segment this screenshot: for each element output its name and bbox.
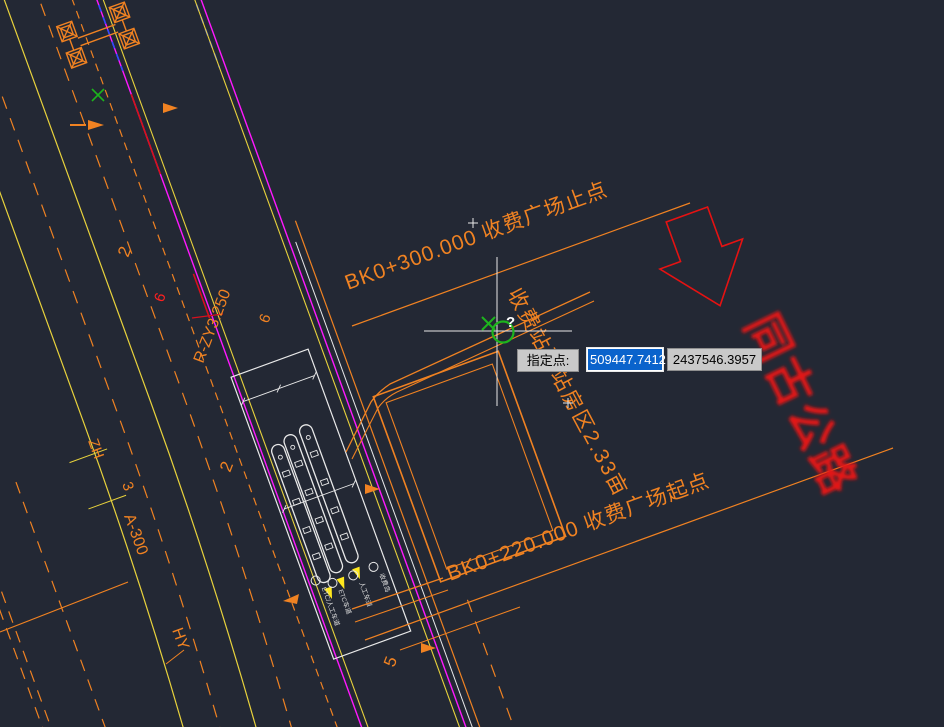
numeral: 2 — [114, 244, 135, 260]
lane-line — [0, 0, 438, 727]
median-line-magenta — [0, 0, 489, 727]
numeral: 6 — [256, 312, 275, 326]
lane-line — [467, 600, 623, 727]
cad-drawing-area[interactable]: ETC/人工车道 ETC车道 人工车道 收费岛 — [0, 0, 944, 727]
dynamic-input-x-field[interactable]: 509447.7412 — [586, 347, 664, 372]
dynamic-input-y-field[interactable]: 2437546.3957 — [667, 348, 762, 371]
hy-tick — [166, 650, 184, 664]
curve-label: R-ZY3.250 — [191, 287, 235, 365]
lane-line — [0, 549, 46, 727]
chainage-label-bk220: BK0+220.000 收费广场起点 — [444, 469, 713, 586]
lane-line — [16, 482, 108, 727]
station-area-label: 收费站副站房区2.33亩 — [503, 285, 633, 501]
flow-arrows — [70, 103, 436, 653]
alignment-a300: A-300 — [120, 512, 151, 558]
alignment-3: 3 — [118, 480, 137, 494]
numeral: 5 — [380, 654, 401, 670]
y-coordinate-value: 2437546.3957 — [673, 352, 756, 367]
segment-red — [131, 94, 160, 174]
culvert-symbol — [57, 2, 140, 68]
lane-markers: ETC/人工车道 ETC车道 人工车道 收费岛 — [310, 553, 398, 630]
numeral: 2 — [216, 459, 237, 475]
lane-line — [0, 0, 374, 727]
direction-sign-text: 同古公路 — [735, 306, 868, 505]
radial-line — [0, 582, 128, 632]
lane-label: ETC车道 — [337, 588, 355, 616]
green-point-marker — [92, 89, 104, 101]
segment-red — [193, 274, 209, 318]
direction-arrow — [646, 199, 762, 320]
alignment-zh: ZH — [84, 437, 107, 462]
help-glyph: ? — [506, 314, 515, 331]
cad-canvas[interactable]: ETC/人工车道 ETC车道 人工车道 收费岛 — [0, 0, 944, 727]
chainage-label-bk300: BK0+300.000 收费广场止点 — [342, 178, 611, 295]
dynamic-input-label: 指定点: — [517, 349, 579, 372]
chainage-tick — [88, 495, 126, 509]
alignment-hy: HY — [168, 626, 192, 653]
numeral-red: 6 — [151, 291, 170, 305]
x-coordinate-value: 509447.7412 — [588, 349, 662, 370]
lane-line — [0, 552, 56, 727]
plaza-linework — [0, 203, 893, 664]
lane-line — [0, 0, 467, 727]
